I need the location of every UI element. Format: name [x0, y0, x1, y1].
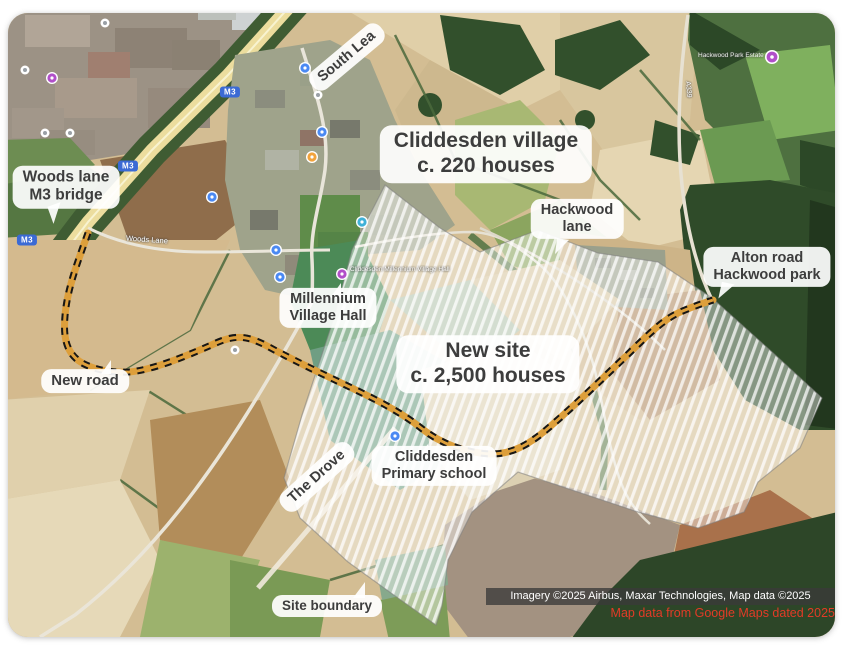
teal-church-pin	[356, 216, 368, 228]
satellite-map-image	[8, 13, 835, 637]
amber-pin	[306, 151, 318, 163]
map-base-art	[8, 13, 835, 637]
